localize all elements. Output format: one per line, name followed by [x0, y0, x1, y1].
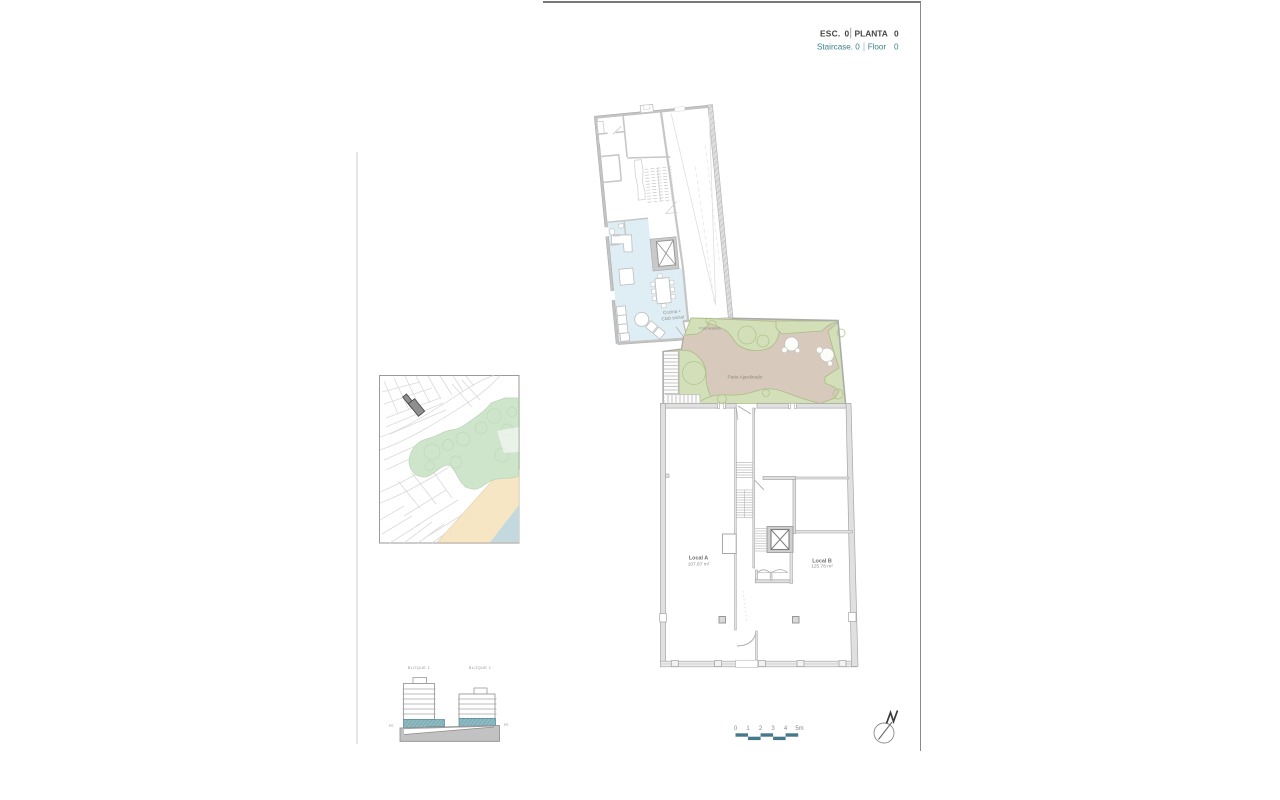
- svg-text:PLANTA: PLANTA: [855, 28, 888, 38]
- svg-text:107.87 m²: 107.87 m²: [688, 561, 710, 567]
- svg-text:Staircase. 0: Staircase. 0: [817, 43, 860, 52]
- svg-text:5m: 5m: [795, 726, 803, 732]
- svg-text:Patio entrada: Patio entrada: [699, 327, 720, 331]
- svg-text:3: 3: [771, 726, 775, 732]
- svg-text:125.78 m²: 125.78 m²: [811, 564, 833, 570]
- svg-text:0: 0: [894, 43, 899, 52]
- svg-text:BLOQUE 2: BLOQUE 2: [469, 665, 492, 670]
- svg-text:0: 0: [894, 28, 899, 38]
- svg-text:Local A: Local A: [689, 556, 708, 562]
- svg-text:BLOQUE 1: BLOQUE 1: [408, 665, 431, 670]
- svg-text:P0: P0: [389, 724, 393, 728]
- svg-text:Patio Ajardinado: Patio Ajardinado: [728, 375, 763, 381]
- svg-text:2: 2: [759, 726, 763, 732]
- svg-text:1: 1: [746, 726, 750, 732]
- svg-text:0: 0: [734, 726, 738, 732]
- svg-text:4: 4: [784, 726, 788, 732]
- svg-text:ESC.: ESC.: [820, 28, 840, 38]
- svg-text:P0: P0: [504, 723, 508, 727]
- svg-text:Floor: Floor: [868, 43, 887, 52]
- svg-text:Aseo: Aseo: [613, 233, 621, 238]
- svg-text:0: 0: [845, 28, 850, 38]
